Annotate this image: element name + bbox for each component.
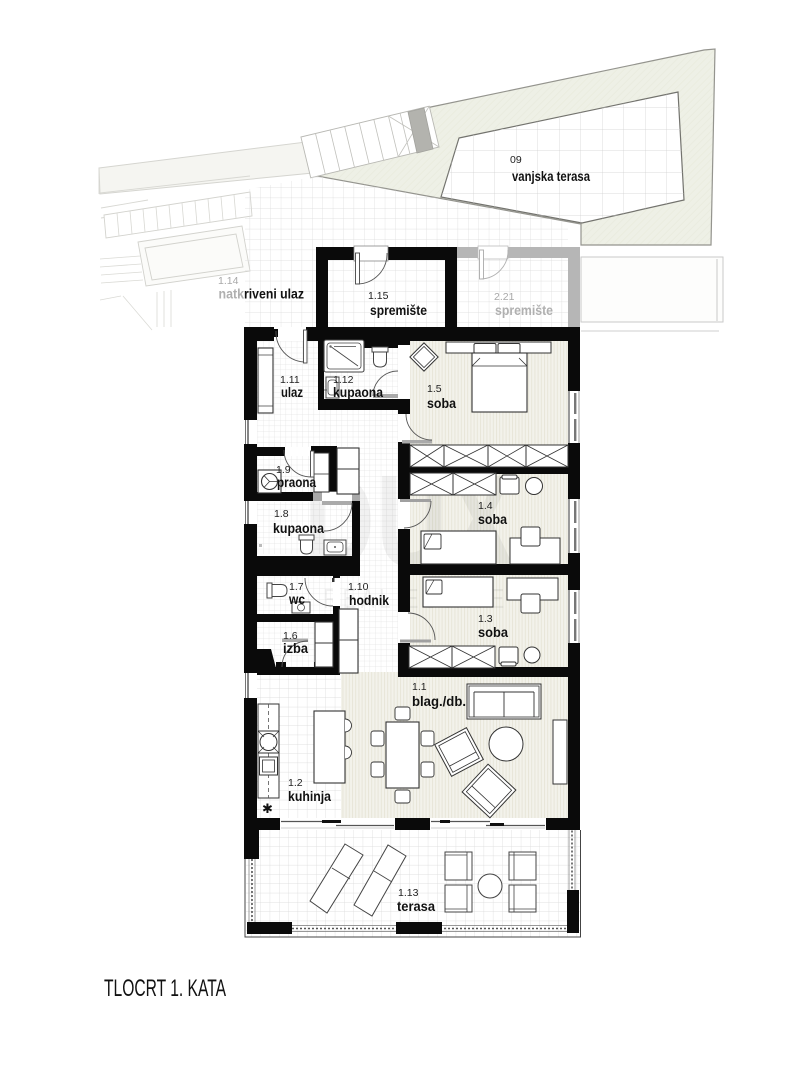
svg-text:wc: wc [288,592,305,607]
svg-text:TLOCRT 1. KATA: TLOCRT 1. KATA [104,975,226,1002]
svg-text:soba: soba [478,625,508,640]
svg-text:soba: soba [478,512,507,527]
svg-text:spremište: spremište [495,303,553,318]
svg-text:1.13: 1.13 [398,887,419,899]
svg-text:blag./db.: blag./db. [412,694,466,709]
svg-text:ulaz: ulaz [281,385,303,400]
svg-text:praona: praona [277,475,316,490]
svg-text:1.8: 1.8 [274,508,289,520]
svg-text:riveni ulaz: riveni ulaz [244,287,304,302]
svg-text:1.5: 1.5 [427,383,442,395]
svg-text:hodnik: hodnik [349,593,389,608]
svg-text:spremište: spremište [370,303,427,318]
svg-text:natk: natk [219,287,245,302]
svg-text:1.2: 1.2 [288,777,303,789]
svg-text:✱: ✱ [262,801,273,816]
svg-text:1.10: 1.10 [348,581,369,593]
svg-text:terasa: terasa [397,899,435,914]
svg-text:kupaona: kupaona [273,521,324,536]
svg-text:1.14: 1.14 [218,275,239,287]
svg-text:1.1: 1.1 [412,681,427,693]
svg-text:kuhinja: kuhinja [288,789,331,804]
svg-text:2.21: 2.21 [494,291,515,303]
svg-text:1.3: 1.3 [478,613,493,625]
svg-text:vanjska terasa: vanjska terasa [512,169,590,184]
svg-text:1.4: 1.4 [478,500,493,512]
svg-text:kupaona: kupaona [333,385,383,400]
svg-text:izba: izba [283,641,308,656]
svg-text:soba: soba [427,396,456,411]
svg-text:1.15: 1.15 [368,290,389,302]
svg-text:09: 09 [510,154,522,166]
